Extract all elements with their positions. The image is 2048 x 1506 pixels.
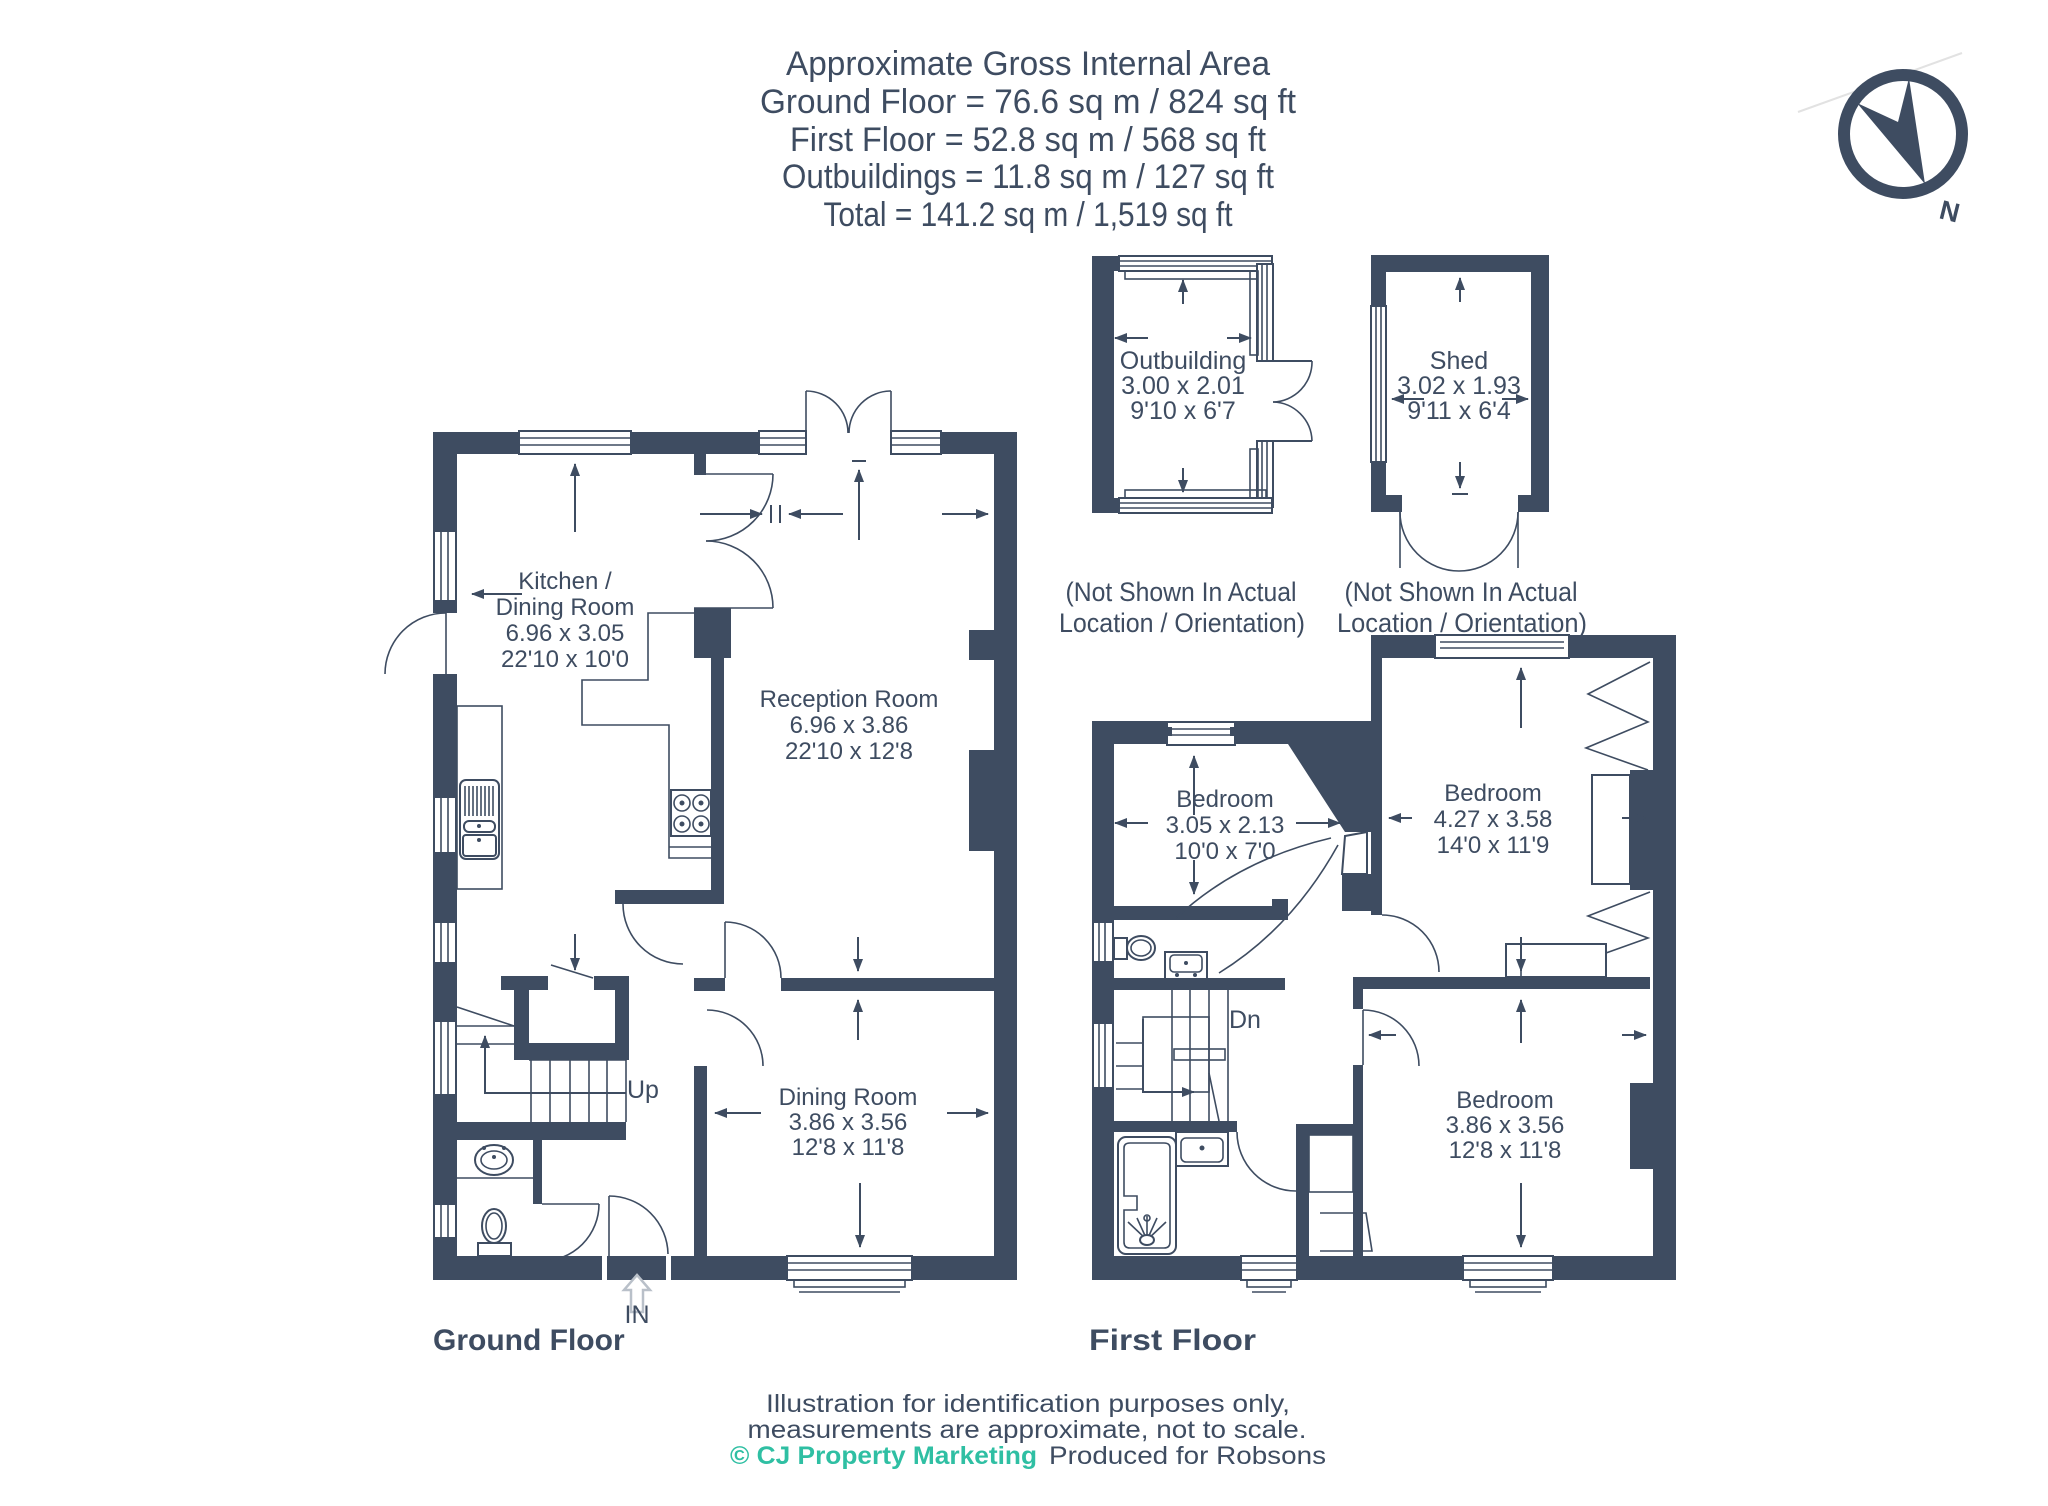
svg-text:Ground Floor = 76.6 sq m / 824: Ground Floor = 76.6 sq m / 824 sq ft [760, 83, 1297, 121]
svg-text:Dining Room: Dining Room [779, 1084, 918, 1111]
svg-text:Reception Room: Reception Room [760, 686, 939, 713]
svg-text:9'10 x 6'7: 9'10 x 6'7 [1130, 397, 1235, 425]
svg-text:Bedroom: Bedroom [1444, 780, 1541, 807]
svg-text:(Not Shown In Actual: (Not Shown In Actual [1345, 577, 1578, 607]
svg-text:6.96 x 3.86: 6.96 x 3.86 [790, 712, 909, 739]
svg-text:First Floor: First Floor [1089, 1324, 1256, 1357]
svg-text:3.00 x 2.01: 3.00 x 2.01 [1121, 372, 1245, 400]
svg-text:4.27 x 3.58: 4.27 x 3.58 [1434, 806, 1553, 833]
svg-text:N: N [1937, 195, 1963, 229]
svg-text:Up: Up [627, 1076, 659, 1104]
svg-text:(Not Shown In Actual: (Not Shown In Actual [1066, 577, 1297, 607]
svg-text:Bedroom: Bedroom [1176, 786, 1273, 813]
svg-text:Approximate Gross Internal Are: Approximate Gross Internal Area [786, 45, 1270, 83]
svg-text:Bedroom: Bedroom [1456, 1087, 1553, 1114]
svg-text:3.02 x 1.93: 3.02 x 1.93 [1397, 372, 1521, 400]
svg-text:Outbuildings = 11.8 sq m / 127: Outbuildings = 11.8 sq m / 127 sq ft [782, 158, 1275, 196]
svg-text:Outbuilding: Outbuilding [1120, 347, 1246, 375]
svg-text:3.86 x 3.56: 3.86 x 3.56 [1446, 1112, 1565, 1139]
svg-text:9'11 x 6'4: 9'11 x 6'4 [1407, 397, 1511, 425]
svg-text:14'0 x 11'9: 14'0 x 11'9 [1437, 832, 1550, 859]
svg-text:3.05 x 2.13: 3.05 x 2.13 [1166, 812, 1285, 839]
svg-text:22'10 x 12'8: 22'10 x 12'8 [785, 738, 913, 765]
svg-text:Shed: Shed [1430, 347, 1488, 375]
svg-text:Kitchen /: Kitchen / [518, 568, 612, 595]
svg-text:Dining Room: Dining Room [496, 594, 635, 621]
svg-text:12'8 x 11'8: 12'8 x 11'8 [1449, 1137, 1562, 1164]
svg-text:measurements are approximate,: measurements are approximate, not to sca… [748, 1416, 1307, 1444]
svg-text:IN: IN [625, 1301, 650, 1329]
svg-text:3.86 x 3.56: 3.86 x 3.56 [789, 1109, 908, 1136]
svg-text:10'0 x 7'0: 10'0 x 7'0 [1174, 838, 1275, 865]
svg-text:Dn: Dn [1229, 1006, 1261, 1034]
svg-text:12'8 x 11'8: 12'8 x 11'8 [792, 1134, 905, 1161]
svg-text:Location / Orientation): Location / Orientation) [1337, 608, 1587, 638]
svg-text:Ground Floor: Ground Floor [433, 1324, 625, 1357]
svg-text:© CJ Property Marketing: © CJ Property Marketing [730, 1442, 1037, 1470]
svg-text:6.96 x 3.05: 6.96 x 3.05 [506, 620, 625, 647]
svg-text:Illustration for identificatio: Illustration for identification purposes… [766, 1390, 1290, 1418]
svg-text:First Floor = 52.8 sq m / 568: First Floor = 52.8 sq m / 568 sq ft [790, 121, 1267, 159]
svg-text:Location / Orientation): Location / Orientation) [1059, 608, 1305, 638]
svg-text:Produced for Robsons: Produced for Robsons [1049, 1442, 1326, 1470]
svg-text:Total = 141.2 sq m / 1,519 sq: Total = 141.2 sq m / 1,519 sq ft [824, 196, 1233, 234]
svg-text:22'10 x 10'0: 22'10 x 10'0 [501, 646, 629, 673]
